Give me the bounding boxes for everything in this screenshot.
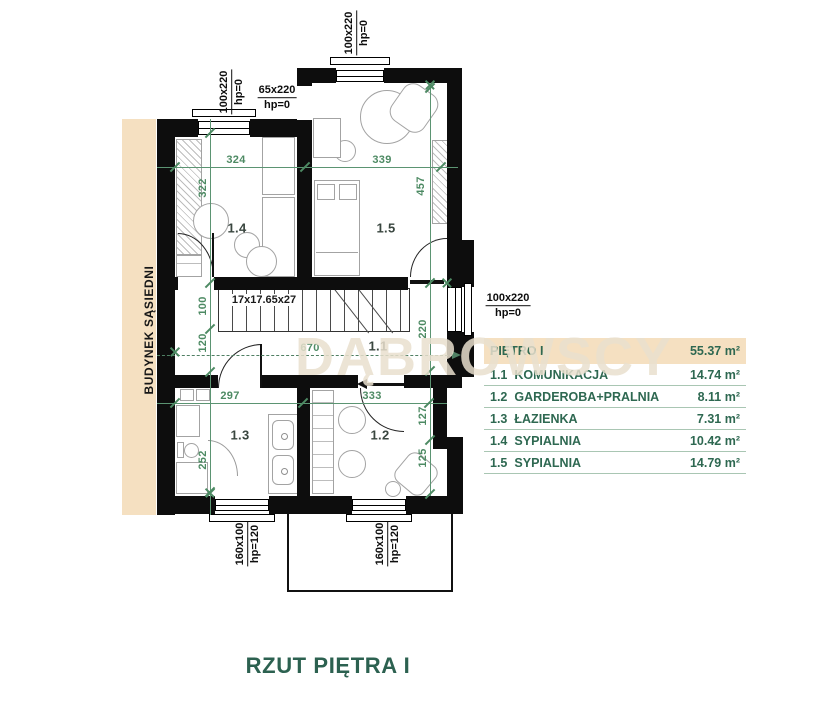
wall-segment xyxy=(157,277,178,290)
wall-segment xyxy=(157,375,218,388)
dim-room12-depth-b: 125 xyxy=(417,448,429,467)
opening-label-right-window: 100x220 hp=0 xyxy=(486,291,531,321)
wall-segment xyxy=(269,496,352,514)
dim-hall-right: 220 xyxy=(417,319,429,338)
dimension-line xyxy=(210,119,211,515)
opening-size: 160x100 xyxy=(233,522,248,567)
wall-segment xyxy=(250,119,297,137)
opening-hp: hp=120 xyxy=(249,525,263,563)
opening-hp: hp=120 xyxy=(389,525,403,563)
survey-mark xyxy=(441,277,453,289)
legend-room-area: 7.31 m² xyxy=(697,412,740,426)
entry-arrow-head xyxy=(357,379,367,389)
wall-segment xyxy=(297,120,312,277)
plant-symbol xyxy=(246,246,277,277)
wall-segment xyxy=(447,68,462,287)
washer-symbol xyxy=(196,389,210,401)
legend-floor-name: PIĘTRO I xyxy=(490,344,543,358)
chair-symbol xyxy=(338,406,366,434)
sink-drain-icon xyxy=(281,433,288,440)
opening-size: 100x220 xyxy=(217,70,232,115)
dim-room13-width: 297 xyxy=(220,390,239,402)
desk-symbol xyxy=(313,118,341,158)
legend-room-num: 1.3 xyxy=(490,412,507,426)
bed-line xyxy=(316,252,358,253)
dimension-line xyxy=(157,167,458,168)
door-arc xyxy=(218,344,262,388)
dimension-arrow xyxy=(452,351,461,359)
chair-symbol xyxy=(338,450,366,478)
legend-room-area: 8.11 m² xyxy=(698,390,740,404)
window-symbol xyxy=(447,287,462,332)
dim-hall-length: 670 xyxy=(300,342,319,354)
pillow-symbol xyxy=(317,184,335,200)
area-legend-table: PIĘTRO I 55.37 m² 1.1KOMUNIKACJA 14.74 m… xyxy=(484,338,746,474)
opening-size: 100x220 xyxy=(486,291,531,306)
wall-segment xyxy=(462,240,474,287)
wall-segment xyxy=(157,119,198,137)
dim-room15-depth: 457 xyxy=(415,176,427,195)
cabinet-symbol xyxy=(176,405,200,437)
desk-symbol xyxy=(262,137,295,195)
survey-mark xyxy=(204,487,216,499)
window-symbol xyxy=(198,121,250,135)
legend-row: 1.4SYPIALNIA 10.42 m² xyxy=(484,430,746,452)
dim-room12-width: 333 xyxy=(362,390,381,402)
opening-hp: hp=0 xyxy=(264,99,290,113)
room-label-1-3: 1.3 xyxy=(231,428,250,443)
legend-row: 1.5SYPIALNIA 14.79 m² xyxy=(484,452,746,474)
opening-size: 160x100 xyxy=(373,522,388,567)
dim-room15-width: 339 xyxy=(372,154,391,166)
wardrobe-shelves-symbol xyxy=(312,390,334,494)
toilet-tank-symbol xyxy=(177,442,184,458)
legend-room-area: 14.79 m² xyxy=(690,456,740,470)
room-label-1-2: 1.2 xyxy=(371,428,390,443)
legend-room-area: 10.42 m² xyxy=(690,434,740,448)
washer-symbol xyxy=(180,389,194,401)
wall-segment xyxy=(433,388,447,443)
window-sill xyxy=(464,283,472,336)
door-leaf xyxy=(260,344,262,388)
wall-segment xyxy=(262,375,358,388)
door-arc xyxy=(410,238,447,277)
room-label-1-4: 1.4 xyxy=(228,221,247,236)
dimension-centerline xyxy=(157,355,453,356)
window-symbol xyxy=(352,499,406,511)
opening-hp: hp=0 xyxy=(233,79,247,105)
legend-row: 1.1KOMUNIKACJA 14.74 m² xyxy=(484,364,746,386)
chair-symbol xyxy=(193,203,229,239)
opening-label-bottom-window-b: 160x100 hp=120 xyxy=(373,522,403,567)
dim-stair-width: 100 xyxy=(197,296,209,315)
stairs-label: 17x17.65x27 xyxy=(230,294,298,306)
floorplan-page: BUDYNEK SĄSIEDNI 17x17.65x27 xyxy=(0,0,826,727)
opening-size: 65x220 xyxy=(258,83,297,98)
dim-room13-depth: 252 xyxy=(197,450,209,469)
wall-segment xyxy=(157,119,175,515)
window-sill xyxy=(330,57,390,65)
room-label-1-5: 1.5 xyxy=(377,221,396,236)
pouf-symbol xyxy=(385,481,401,497)
door-arc xyxy=(208,440,238,476)
window-symbol xyxy=(336,70,384,82)
opening-hp: hp=0 xyxy=(495,307,521,321)
legend-room-num: 1.2 xyxy=(490,390,507,404)
dimension-line xyxy=(430,86,431,496)
legend-room-num: 1.5 xyxy=(490,456,507,470)
wall-segment xyxy=(447,332,462,388)
opening-label-door: 65x220 hp=0 xyxy=(258,83,297,113)
legend-room-num: 1.1 xyxy=(490,368,507,382)
dim-room12-depth-a: 127 xyxy=(417,406,429,425)
opening-label-bottom-window-a: 160x100 hp=120 xyxy=(233,522,263,567)
window-symbol xyxy=(215,499,269,511)
opening-label-left-window: 100x220 hp=0 xyxy=(217,70,247,115)
wall-segment xyxy=(297,68,336,83)
door-arc xyxy=(178,233,214,277)
legend-header-row: PIĘTRO I 55.37 m² xyxy=(484,338,746,364)
legend-room-name: ŁAZIENKA xyxy=(514,412,577,426)
dim-room14-depth: 322 xyxy=(197,178,209,197)
survey-mark xyxy=(169,346,181,358)
dim-hall-left: 120 xyxy=(197,333,209,352)
wall-segment xyxy=(214,277,408,290)
page-title: RZUT PIĘTRA I xyxy=(246,653,411,679)
legend-room-name: KOMUNIKACJA xyxy=(514,368,608,382)
legend-row: 1.2GARDEROBA+PRALNIA 8.11 m² xyxy=(484,386,746,408)
legend-room-area: 14.74 m² xyxy=(690,368,740,382)
legend-room-name: SYPIALNIA xyxy=(514,456,581,470)
door-leaf xyxy=(212,233,214,277)
opening-hp: hp=0 xyxy=(358,20,372,46)
legend-room-name: SYPIALNIA xyxy=(514,434,581,448)
legend-row: 1.3ŁAZIENKA 7.31 m² xyxy=(484,408,746,430)
wall-segment xyxy=(406,496,463,514)
room-label-1-1: 1.1 xyxy=(369,339,388,354)
sink-drain-icon xyxy=(281,468,288,475)
neighbor-building-label: BUDYNEK SĄSIEDNI xyxy=(142,266,156,395)
legend-floor-area: 55.37 m² xyxy=(690,344,740,358)
opening-size: 100x220 xyxy=(342,11,357,56)
wall-segment xyxy=(462,332,474,377)
legend-room-name: GARDEROBA+PRALNIA xyxy=(514,390,659,404)
legend-room-num: 1.4 xyxy=(490,434,507,448)
dim-room14-width: 324 xyxy=(226,154,245,166)
survey-mark xyxy=(424,79,436,91)
wall-segment xyxy=(404,375,447,388)
opening-label-top-window: 100x220 hp=0 xyxy=(342,11,372,56)
pillow-symbol xyxy=(339,184,357,200)
entry-arrow-line xyxy=(366,383,404,386)
